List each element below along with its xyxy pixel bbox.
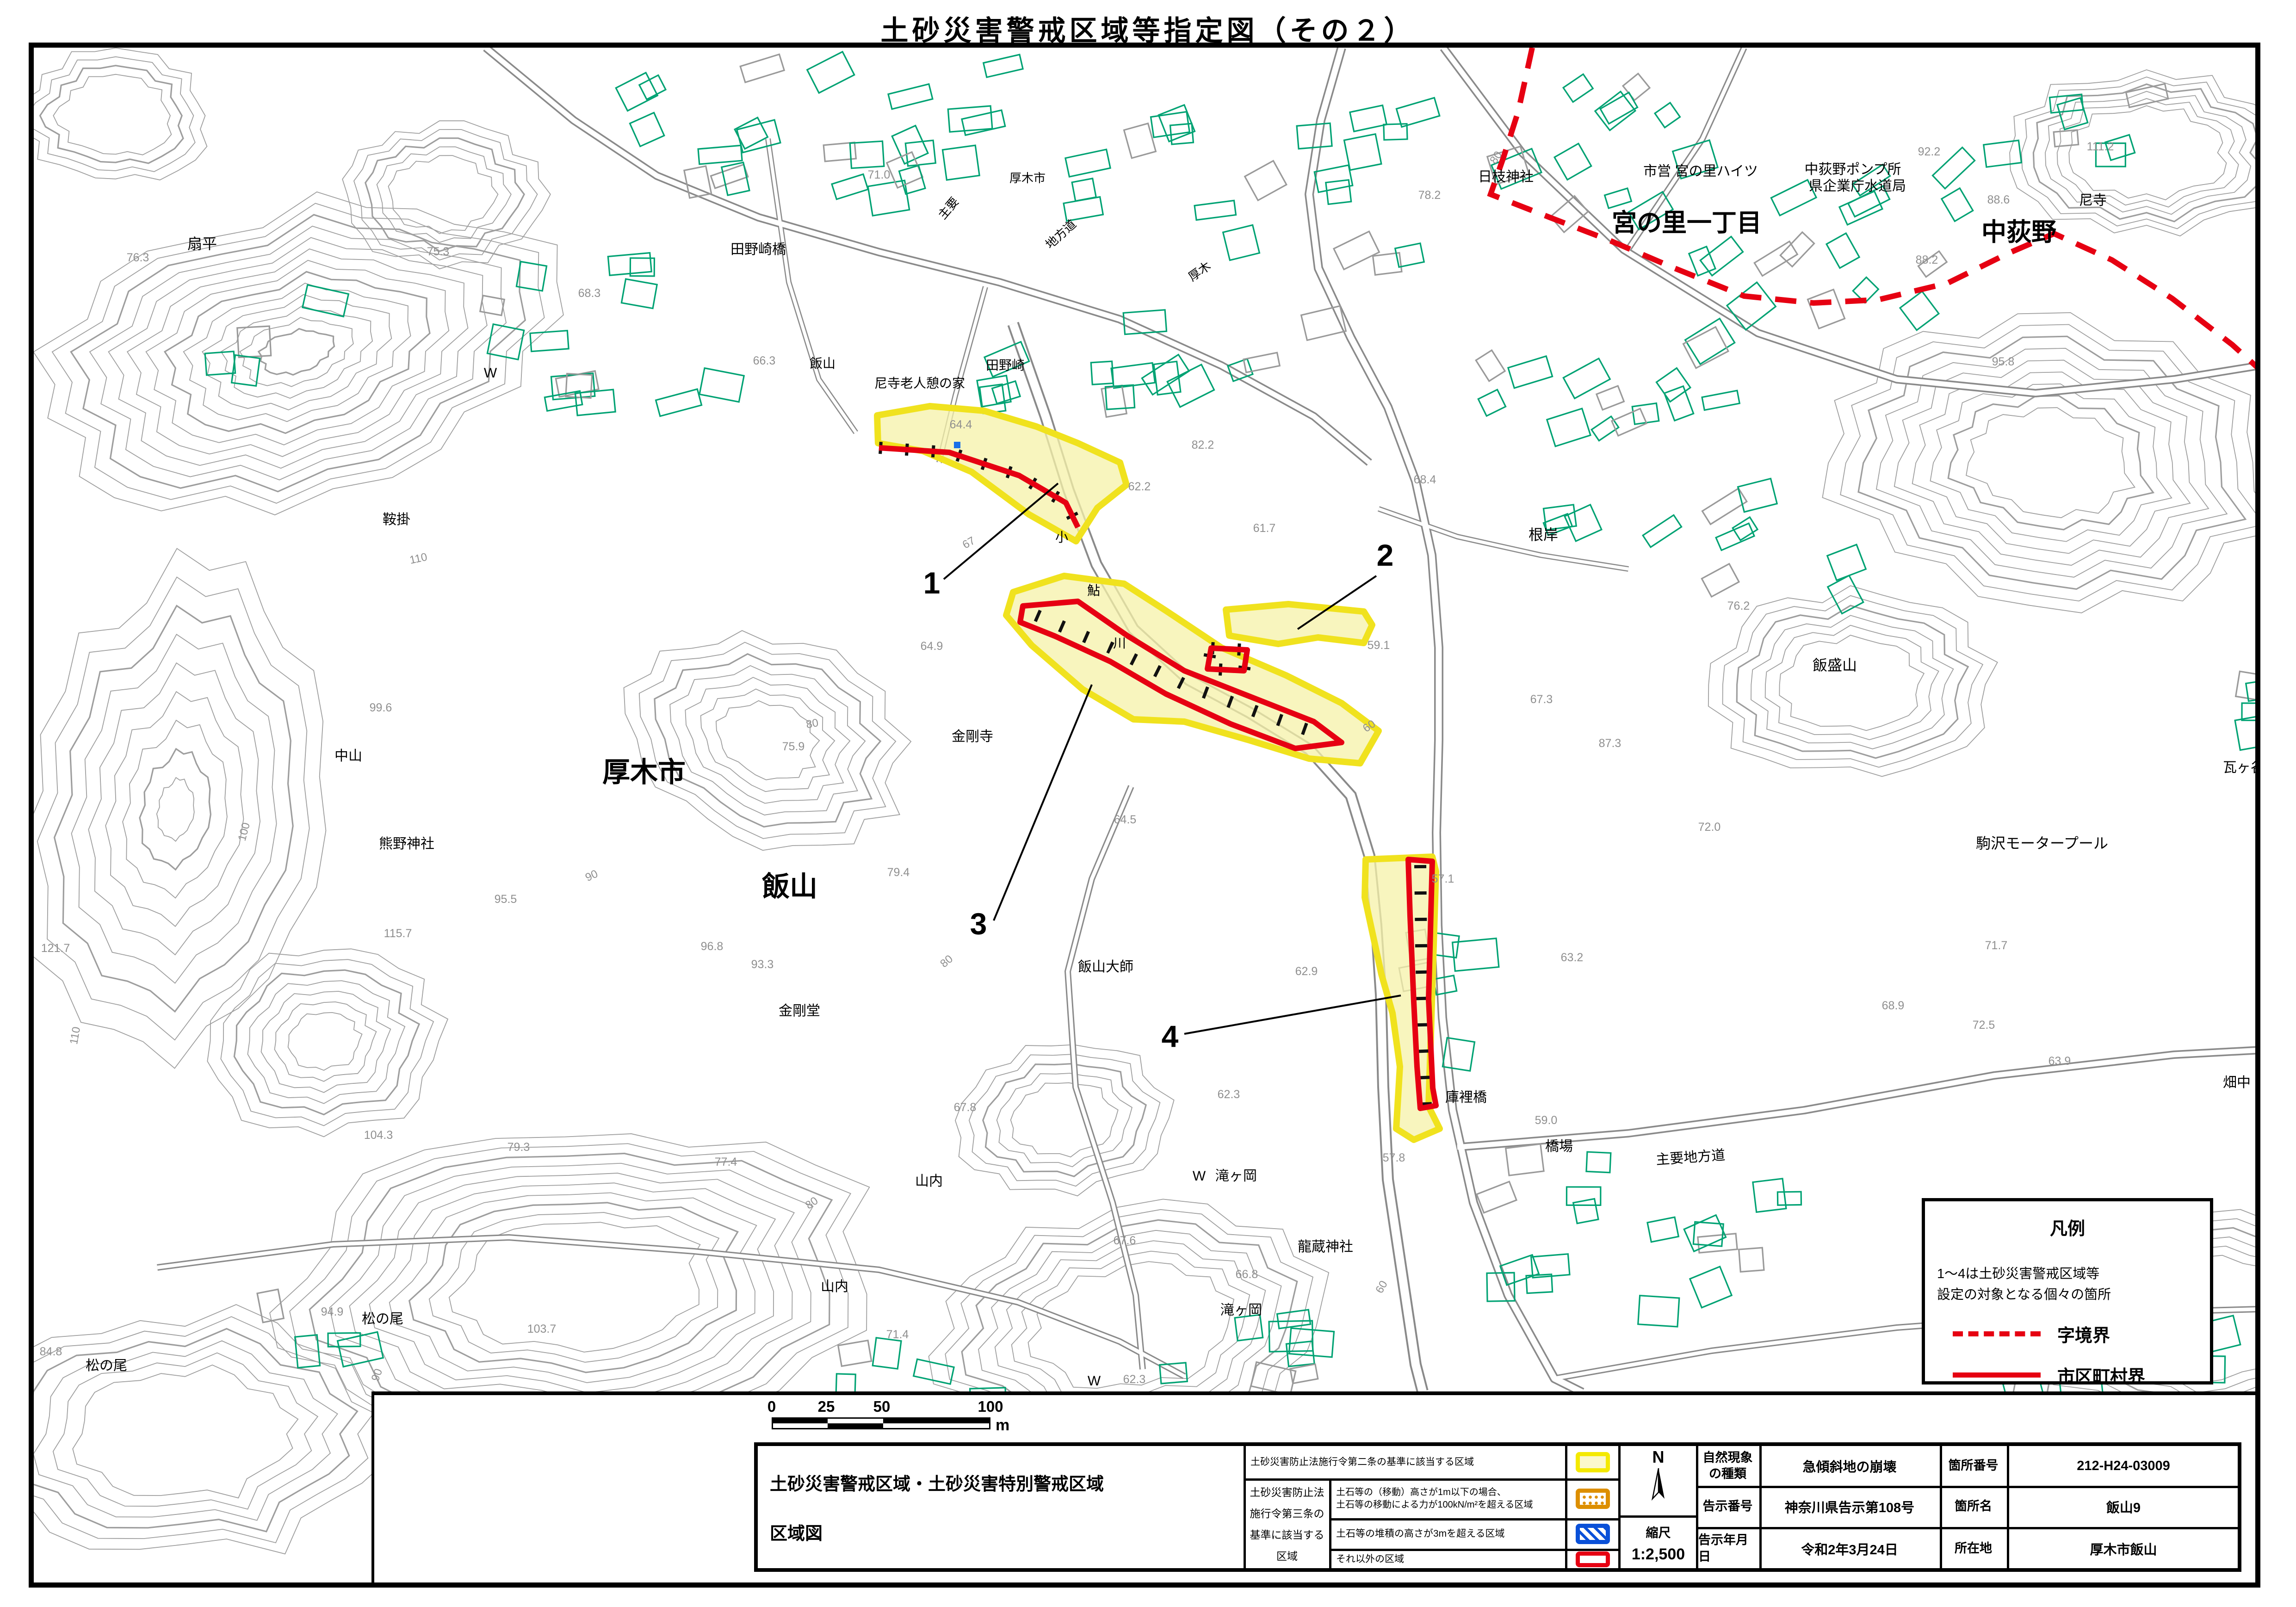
- contour-line: [381, 1176, 769, 1399]
- building-footprint: [1984, 140, 2022, 167]
- group-line: 基準に該当する: [1250, 1524, 1324, 1545]
- building-footprint: [1739, 1248, 1764, 1272]
- criteria-row2-line2: 土石等の移動による力が100kN/m²を超える区域: [1336, 1499, 1533, 1511]
- map-label: 95.5: [495, 893, 517, 906]
- map-label: 龍蔵神社: [1298, 1239, 1353, 1255]
- map-label: 80: [938, 952, 955, 970]
- contour-line: [626, 619, 908, 858]
- building-footprint: [1665, 386, 1694, 421]
- map-label: 95.8: [1992, 355, 2015, 368]
- map-label: 68.4: [1414, 473, 1436, 486]
- contour-line: [153, 776, 198, 843]
- building-footprint: [630, 112, 664, 146]
- road-center: [1379, 509, 1628, 569]
- contour-line: [30, 151, 584, 550]
- map-label: 67.3: [1530, 693, 1553, 706]
- scale-bar-segment: [773, 1423, 828, 1428]
- contour-line: [1962, 396, 2144, 527]
- building-footprint: [1565, 505, 1602, 541]
- map-label: 飯山: [762, 871, 817, 902]
- building-footprint: [1826, 233, 1859, 268]
- map-label: 64.4: [950, 418, 972, 431]
- building-footprint: [899, 166, 925, 194]
- map-label: 104.3: [364, 1129, 393, 1142]
- map-label: 100: [236, 821, 253, 842]
- road-center: [1068, 786, 1143, 1369]
- building-footprint: [1900, 291, 1939, 330]
- info-label: 箇所番号: [1942, 1446, 2005, 1486]
- map-title-cell: 土砂災害警戒区域・土砂災害特別警戒区域 区域図: [758, 1446, 1244, 1568]
- building-footprint: [984, 55, 1023, 77]
- legend-item-label: 市区町村界: [2057, 1362, 2145, 1388]
- road-center: [768, 139, 856, 433]
- zone-leader-line: [944, 483, 1058, 579]
- legend-box: 凡例 1～4は土砂災害警戒区域等 設定の対象となる個々の箇所 字境界 市区町村界: [1922, 1198, 2213, 1384]
- map-label: 橋場: [1545, 1139, 1573, 1154]
- swatch-cell: [1567, 1446, 1618, 1478]
- info-value: 212-H24-03009: [2009, 1446, 2238, 1486]
- building-footprint: [1154, 361, 1181, 395]
- contour-line: [319, 1141, 829, 1435]
- map-label: 59.1: [1368, 639, 1390, 652]
- building-footprint: [1065, 149, 1110, 177]
- map-label: 根岸: [1529, 526, 1558, 543]
- map-label: 滝ヶ岡: [1220, 1303, 1262, 1318]
- contour-line: [444, 1211, 709, 1363]
- building-footprint: [1702, 564, 1739, 597]
- info-value: 厚木市飯山: [2009, 1529, 2238, 1568]
- contour-line: [665, 652, 870, 826]
- map-label: 90: [369, 1367, 385, 1383]
- legend-title: 凡例: [1925, 1214, 2210, 1240]
- yellow-zone-swatch: [1576, 1452, 1610, 1472]
- contour-line: [214, 290, 385, 413]
- map-label: 田野崎橋: [730, 242, 786, 257]
- swatch-cell: [1567, 1480, 1618, 1517]
- map-label: 山内: [821, 1279, 848, 1294]
- building-footprint: [948, 106, 992, 132]
- road-outline: [1379, 509, 1628, 569]
- contour-line: [53, 624, 301, 994]
- map-label: 99.6: [370, 701, 392, 714]
- building-footprint: [2054, 130, 2079, 147]
- info-value: 令和2年3月24日: [1762, 1529, 1937, 1568]
- building-footprint: [1600, 93, 1637, 124]
- contour-line: [248, 981, 405, 1104]
- map-label: 市営 宮の里ハイツ: [1643, 164, 1758, 179]
- info-table: 土砂災害警戒区域・土砂災害特別警戒区域 区域図 土砂災害防止法施行令第二条の基準…: [754, 1442, 2241, 1572]
- map-label: 77.4: [715, 1156, 737, 1168]
- map-label: 66.3: [753, 354, 776, 367]
- map-label: 57.8: [1383, 1151, 1405, 1164]
- contour-line: [173, 259, 429, 443]
- map-label: 66.8: [1236, 1268, 1258, 1281]
- map-label: W: [484, 365, 497, 381]
- scale-tick-label: 50: [873, 1398, 891, 1415]
- map-label: W: [1193, 1168, 1206, 1184]
- building-footprint: [1245, 161, 1287, 201]
- building-footprint: [1500, 1255, 1539, 1285]
- contour-line: [113, 715, 240, 903]
- building-footprint: [1194, 200, 1236, 220]
- road-outline: [768, 139, 856, 433]
- building-footprint: [1643, 515, 1681, 547]
- map-label: 60: [1373, 1279, 1390, 1296]
- road-center: [1457, 1050, 2260, 1147]
- map-title-line2: 区域図: [770, 1519, 823, 1545]
- map-label: 61.7: [1253, 522, 1276, 535]
- contour-line: [360, 1164, 789, 1411]
- map-label: 62.3: [1218, 1088, 1240, 1101]
- contour-line: [71, 182, 539, 519]
- building-footprint: [698, 145, 742, 164]
- zone-number-3: 3: [970, 907, 987, 941]
- building-footprint: [1647, 1217, 1678, 1242]
- building-footprint: [807, 52, 854, 93]
- contour-line: [607, 603, 926, 874]
- building-footprint: [1506, 1144, 1544, 1175]
- map-label: 主要地方道: [1655, 1148, 1726, 1168]
- map-label: 103.7: [527, 1323, 557, 1335]
- building-footprint: [1334, 231, 1379, 269]
- contour-line: [423, 1199, 729, 1375]
- contour-line: [684, 668, 850, 810]
- building-footprint: [888, 84, 933, 109]
- map-label: 宮の里一丁目: [1612, 209, 1762, 237]
- map-label: 飯盛山: [1813, 657, 1857, 674]
- scale-cell: 縮尺 1:2,500: [1621, 1518, 1696, 1568]
- building-footprint: [1547, 408, 1590, 446]
- legend-item-municipal: 市区町村界: [1953, 1362, 2210, 1388]
- map-label: 76.2: [1727, 600, 1750, 612]
- contour-line: [1829, 296, 2288, 625]
- orange-dotted-zone-swatch: [1576, 1489, 1610, 1509]
- building-footprint: [1508, 356, 1553, 388]
- map-label: 90: [583, 867, 600, 884]
- map-label: 山内: [915, 1174, 943, 1189]
- map-label: 63.2: [1561, 951, 1584, 964]
- map-label: 中荻野ポンプ所: [1804, 162, 1901, 177]
- compass-arrow-icon: [1648, 1465, 1669, 1504]
- contour-line: [1765, 625, 1939, 740]
- building-footprint: [237, 326, 271, 357]
- map-label: 田野崎: [986, 358, 1025, 372]
- scale-tick-label: 25: [818, 1398, 835, 1415]
- legend-note: 1～4は土砂災害警戒区域等 設定の対象となる個々の箇所: [1937, 1264, 2210, 1305]
- criteria-row2-line1: 土石等の（移動）高さが1m以下の場合、: [1336, 1486, 1506, 1499]
- building-footprint: [1476, 350, 1505, 381]
- zone-leader-line: [994, 685, 1092, 921]
- map-label: 駒沢モータープール: [1976, 835, 2108, 852]
- map-label: 67.6: [1114, 1234, 1136, 1247]
- map-label: 72.0: [1698, 821, 1721, 834]
- criteria-row2: 土石等の（移動）高さが1m以下の場合、 土石等の移動による力が100kN/m²を…: [1331, 1480, 1565, 1517]
- map-label: 62.3: [1123, 1373, 1146, 1386]
- building-footprint: [1655, 103, 1680, 128]
- map-label: 飯山: [810, 356, 835, 371]
- contour-line: [957, 1034, 1171, 1203]
- contour-line: [942, 1022, 1188, 1215]
- building-footprint: [2236, 671, 2277, 702]
- contour-line: [1723, 596, 1983, 767]
- map-label: 63.9: [2048, 1055, 2071, 1068]
- contour-line: [9, 136, 606, 565]
- map-label: 金剛堂: [779, 1003, 820, 1019]
- map-label: 中山: [334, 748, 362, 764]
- map-label: 67.8: [954, 1101, 977, 1114]
- compass-cell: N: [1621, 1446, 1696, 1515]
- map-label: 75.9: [782, 740, 805, 753]
- contour-line: [2010, 70, 2287, 236]
- building-footprint: [1777, 1192, 1801, 1205]
- zone-number-4: 4: [1162, 1019, 1179, 1053]
- contour-line: [261, 991, 391, 1093]
- contour-line: [288, 1013, 362, 1070]
- building-footprint: [1277, 1310, 1311, 1329]
- building-footprint: [480, 296, 505, 315]
- map-label: 厚木: [1186, 259, 1213, 284]
- contour-line: [1943, 382, 2165, 541]
- building-footprint: [873, 1338, 901, 1369]
- map-label: 67: [960, 534, 978, 551]
- map-label: 尼寺: [2079, 193, 2107, 208]
- red-outline-zone-swatch: [1576, 1551, 1610, 1567]
- building-footprint: [1605, 188, 1632, 208]
- contour-line: [194, 274, 407, 428]
- map-label: 93.3: [751, 958, 774, 971]
- group-line: 施行令第三条の: [1250, 1503, 1324, 1524]
- map-label: 松の尾: [86, 1358, 127, 1373]
- map-label: 94.9: [321, 1305, 344, 1318]
- building-footprint: [1586, 1152, 1611, 1173]
- scale-tick-label: 0: [767, 1398, 776, 1415]
- map-label: 地方道: [1043, 217, 1079, 251]
- building-footprint: [1942, 188, 1973, 222]
- aza-boundary-line: [1491, 48, 2260, 370]
- hazard-zone-z2: [1226, 604, 1372, 644]
- building-footprint: [1167, 365, 1214, 407]
- building-footprint: [1698, 1234, 1737, 1253]
- map-label: 57.1: [1432, 872, 1454, 885]
- zone-number-1: 1: [923, 566, 941, 600]
- scale-bar: [772, 1417, 990, 1429]
- map-label: 小: [1055, 530, 1068, 544]
- building-footprint: [1690, 1267, 1732, 1308]
- map-label: 96.8: [701, 940, 724, 953]
- building-footprint: [1754, 241, 1797, 276]
- map-label: 中荻野: [1981, 218, 2056, 246]
- map-label: 68.9: [1882, 999, 1905, 1012]
- building-footprint: [1124, 124, 1156, 158]
- map-label: 72.5: [1973, 1019, 1995, 1032]
- info-label: 告示年月日: [1698, 1529, 1757, 1568]
- contour-line: [40, 66, 184, 163]
- building-footprint: [1623, 74, 1650, 100]
- map-label: 71.4: [886, 1328, 909, 1341]
- map-label: 71.7: [1985, 939, 2008, 952]
- building-footprint: [303, 285, 348, 317]
- contour-line: [388, 155, 498, 234]
- contour-line: [377, 147, 511, 242]
- scale-bar-segment: [883, 1423, 989, 1428]
- building-footprint: [656, 389, 702, 416]
- building-footprint: [1612, 408, 1646, 436]
- building-footprint: [942, 145, 979, 180]
- info-value: 飯山9: [2009, 1488, 2238, 1525]
- map-label: 64.5: [1114, 813, 1137, 826]
- contour-line: [133, 745, 219, 873]
- contour-line: [50, 166, 562, 534]
- map-label: 県企業庁水道局: [1809, 179, 1906, 194]
- map-label: 78.2: [1418, 189, 1441, 202]
- legend-note-line2: 設定の対象となる個々の箇所: [1937, 1285, 2210, 1305]
- survey-point-marker: [954, 442, 960, 448]
- legend-item-label: 字境界: [2057, 1321, 2110, 1347]
- map-label: 飯山大師: [1078, 959, 1133, 975]
- page: 土砂災害警戒区域等指定図（その２） 宮の里一丁目中荻野厚木市飯山日枝神社市営 宮…: [0, 0, 2296, 1607]
- contour-line: [221, 959, 433, 1125]
- contour-line: [0, 532, 362, 1084]
- building-footprint: [1807, 290, 1844, 328]
- building-footprint: [1554, 143, 1591, 179]
- map-label: 68.3: [578, 287, 601, 300]
- contour-line: [645, 636, 888, 842]
- scale-value: 1:2,500: [1632, 1545, 1685, 1564]
- criteria-group-label: 土砂災害防止法 施行令第三条の 基準に該当する 区域: [1246, 1480, 1328, 1568]
- map-label: 厚木市: [602, 757, 686, 788]
- map-label: 62.2: [1128, 480, 1151, 493]
- info-label-line: の種類: [1709, 1466, 1746, 1482]
- building-footprint: [1344, 134, 1381, 170]
- map-label: 110: [408, 550, 428, 566]
- building-footprint: [487, 324, 524, 360]
- map-label: 庫裡橋: [1445, 1090, 1487, 1105]
- map-label: 92.2: [1918, 145, 1941, 158]
- map-label: 畑中: [2223, 1075, 2251, 1090]
- building-footprint: [530, 331, 569, 352]
- solid-red-line-sample: [1953, 1372, 2041, 1378]
- contour-line: [1779, 635, 1924, 730]
- building-footprint: [962, 110, 1005, 135]
- map-label: 71.0: [868, 168, 891, 181]
- building-footprint: [1685, 319, 1735, 365]
- map-label: 59.0: [1535, 1114, 1558, 1127]
- info-label: 箇所名: [1942, 1488, 2005, 1525]
- map-label: 瓦ヶ谷: [2223, 760, 2265, 775]
- map-label: 尼寺老人憩の家: [874, 376, 965, 390]
- contour-line: [73, 1365, 298, 1498]
- map-label: 鞍掛: [383, 512, 410, 527]
- contour-line: [402, 1187, 749, 1387]
- swatch-cell: [1567, 1520, 1618, 1548]
- building-footprint: [1656, 368, 1690, 402]
- building-footprint: [1700, 236, 1743, 275]
- criteria-row4: それ以外の区域: [1331, 1551, 1565, 1568]
- contour-line: [73, 654, 280, 964]
- building-footprint: [1827, 544, 1866, 580]
- map-label: 84.8: [40, 1345, 62, 1358]
- map-label: 75.3: [427, 245, 450, 258]
- dashed-red-line-sample: [1953, 1331, 2041, 1336]
- building-footprint: [621, 279, 657, 309]
- info-label: 自然現象 の種類: [1698, 1446, 1757, 1486]
- building-footprint: [1350, 105, 1386, 132]
- building-footprint: [1738, 479, 1777, 512]
- building-footprint: [1716, 523, 1754, 550]
- info-label: 告示番号: [1698, 1488, 1757, 1525]
- building-footprint: [1223, 225, 1260, 260]
- map-label: 115.7: [384, 927, 412, 940]
- blue-hatched-zone-swatch: [1576, 1524, 1610, 1544]
- scale-bar-segment: [828, 1423, 883, 1428]
- hazard-zone-z1: [877, 406, 1126, 541]
- map-label: 121.7: [41, 942, 70, 955]
- criteria-row3-text: 土石等の堆積の高さが3mを超える区域: [1336, 1527, 1505, 1540]
- swatch-cell: [1567, 1551, 1618, 1568]
- building-footprint: [1477, 1181, 1516, 1212]
- map-label: 金剛寺: [952, 729, 993, 744]
- contour-line: [2022, 77, 2275, 229]
- map-label: 滝ヶ岡: [1215, 1168, 1257, 1184]
- building-footprint: [516, 262, 546, 291]
- info-label: 所在地: [1942, 1529, 2005, 1568]
- info-value: 神奈川県告示第108号: [1762, 1488, 1937, 1525]
- building-footprint: [1478, 389, 1505, 416]
- map-label: 82.2: [1192, 439, 1214, 451]
- map-label: 川: [1113, 636, 1126, 650]
- map-label: 80: [803, 1194, 820, 1211]
- map-label: 111.2: [2087, 140, 2114, 153]
- map-label: 松の尾: [362, 1311, 403, 1327]
- criteria-row1-text: 土砂災害防止法施行令第二条の基準に該当する区域: [1250, 1456, 1474, 1469]
- map-label: 88.2: [1916, 253, 1938, 266]
- building-footprint: [1702, 390, 1739, 410]
- contour-line: [255, 321, 340, 382]
- map-label: 扇平: [187, 235, 217, 252]
- info-label-line: 自然現象: [1703, 1450, 1753, 1466]
- legend-item-aza: 字境界: [1953, 1321, 2210, 1347]
- map-label: 日枝神社: [1478, 169, 1534, 185]
- map-label: 79.3: [507, 1141, 530, 1154]
- contour-line: [132, 228, 473, 474]
- legend-note-line1: 1～4は土砂災害警戒区域等: [1937, 1264, 2210, 1285]
- contour-line: [53, 74, 171, 155]
- building-footprint: [740, 54, 784, 82]
- map-label: 厚木市: [1009, 171, 1046, 185]
- map-label: 主要: [935, 195, 961, 222]
- contour-line: [91, 197, 517, 504]
- group-line: 土砂災害防止法: [1250, 1482, 1324, 1503]
- building-footprint: [1453, 938, 1499, 971]
- building-footprint: [1105, 385, 1134, 409]
- building-footprint: [1573, 1199, 1598, 1223]
- building-footprint: [1396, 98, 1439, 127]
- building-footprint: [1597, 386, 1624, 410]
- scale-tick-label: 100: [978, 1398, 1003, 1415]
- zone-leader-line: [1184, 995, 1401, 1034]
- map-title-line1: 土砂災害警戒区域・土砂災害特別警戒区域: [770, 1470, 1104, 1495]
- building-footprint: [699, 368, 744, 402]
- map-label: 79.4: [887, 866, 910, 879]
- map-label: W: [1088, 1373, 1101, 1389]
- contour-line: [153, 243, 451, 458]
- map-label: 62.9: [1295, 965, 1318, 978]
- building-footprint: [711, 165, 748, 188]
- map-label: 76.3: [127, 251, 149, 264]
- zone-number-2: 2: [1377, 538, 1394, 572]
- building-footprint: [1839, 191, 1882, 225]
- scale-bar-segment: [773, 1419, 828, 1423]
